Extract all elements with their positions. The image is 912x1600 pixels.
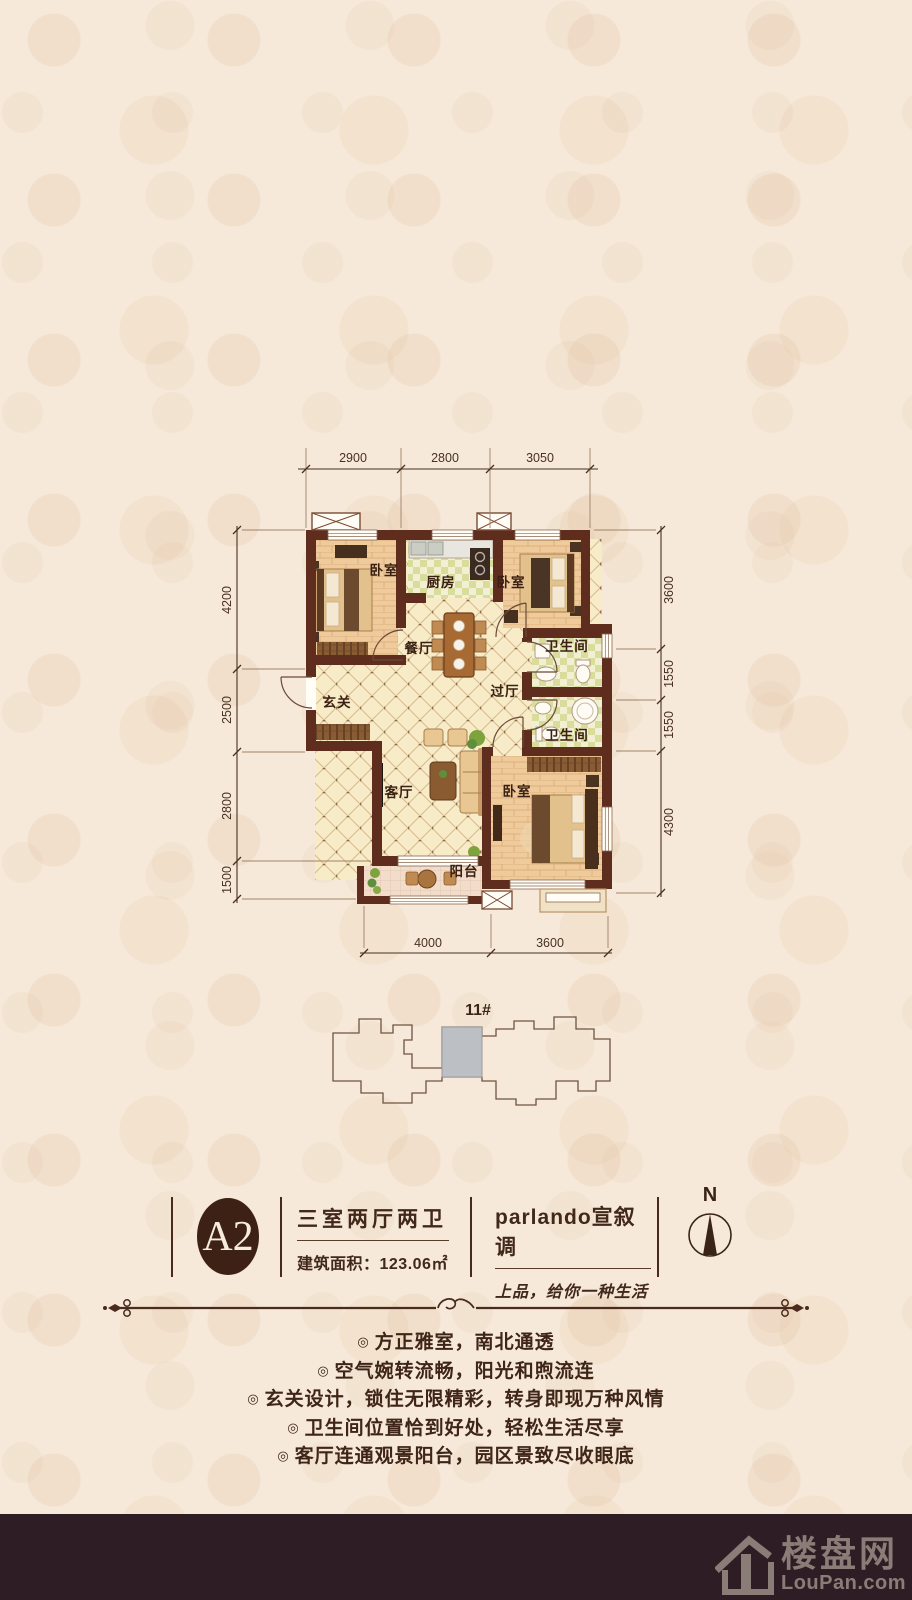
room-label-kitchen: 厨房 [427, 574, 456, 590]
watermark-text: 楼盘网 LouPan.com [781, 1536, 906, 1594]
dim-bottom-0: 4000 [414, 936, 442, 950]
watermark-site-name: 楼盘网 [781, 1536, 906, 1572]
dim-left-3: 1500 [220, 866, 234, 894]
bullet-icon: ◎ [287, 1420, 299, 1435]
balcony-window [390, 896, 468, 904]
room-label-bedroom-bottom: 卧室 [503, 783, 532, 799]
bay-window-box-mid [477, 513, 511, 530]
feature-item: ◎客厅连通观景阳台，园区景致尽收眼底 [0, 1442, 912, 1471]
brand-block: parlando宣叙调 上品，给你一种生活 [495, 1201, 657, 1302]
window-bedroom-right [602, 807, 612, 851]
dim-right-2: 1550 [662, 711, 676, 739]
info-divider-4 [657, 1197, 659, 1277]
unit-code: A2 [202, 1213, 253, 1261]
floorplan-poster: 2900 2800 3050 4200 2500 2800 1500 3600 … [0, 0, 912, 1600]
dim-left-2: 2800 [220, 792, 234, 820]
dim-right-3: 4300 [662, 808, 676, 836]
bullet-icon: ◎ [317, 1363, 329, 1378]
bay-window-bottom [540, 889, 606, 912]
feature-item: ◎方正雅室，南北通透 [0, 1328, 912, 1357]
dim-right-0: 3600 [662, 576, 676, 604]
info-divider-2 [280, 1197, 282, 1277]
layout-title: 三室两厅两卫 [297, 1203, 472, 1233]
room-label-balcony: 阳台 [450, 863, 479, 879]
room-label-bath-upper: 卫生间 [545, 638, 589, 654]
dim-top-0: 2900 [339, 451, 367, 465]
footer-bar: 楼盘网 LouPan.com [0, 1514, 912, 1600]
room-label-dining: 餐厅 [404, 640, 434, 656]
room-label-hallway: 过厅 [491, 683, 520, 699]
room-label-bedroom-top-right: 卧室 [497, 574, 526, 590]
feature-list: ◎方正雅室，南北通透 ◎空气婉转流畅，阳光和煦流连 ◎玄关设计，锁住无限精彩，转… [0, 1328, 912, 1471]
bay-window-box-left [312, 513, 360, 530]
dim-bottom-1: 3600 [536, 936, 564, 950]
dim-left-0: 4200 [220, 586, 234, 614]
watermark: 楼盘网 LouPan.com [715, 1534, 906, 1596]
bullet-icon: ◎ [357, 1334, 369, 1349]
feature-item: ◎玄关设计，锁住无限精彩，转身即现万种风情 [0, 1385, 912, 1414]
feature-text: 卫生间位置恰到好处，轻松生活尽享 [305, 1418, 625, 1439]
shoe-cabinet [314, 724, 370, 740]
feature-text: 客厅连通观景阳台，园区景致尽收眼底 [295, 1446, 635, 1467]
dim-top-1: 2800 [431, 451, 459, 465]
dim-right-1: 1550 [662, 660, 676, 688]
dim-top-2: 3050 [526, 451, 554, 465]
watermark-site-domain: LouPan.com [781, 1572, 906, 1594]
ornamental-divider [100, 1294, 812, 1322]
feature-text: 空气婉转流畅，阳光和煦流连 [335, 1361, 595, 1382]
feature-text: 玄关设计，锁住无限精彩，转身即现万种风情 [265, 1389, 665, 1410]
layout-block: 三室两厅两卫 建筑面积：123.06㎡ [297, 1203, 472, 1274]
room-label-foyer: 玄关 [323, 694, 352, 710]
area-text: 建筑面积：123.06㎡ [297, 1250, 472, 1274]
room-label-bath-lower: 卫生间 [545, 727, 589, 743]
bullet-icon: ◎ [247, 1391, 259, 1406]
room-label-bedroom-top-left: 卧室 [370, 562, 399, 578]
feature-text: 方正雅室，南北通透 [375, 1332, 555, 1353]
building-label: 11# [465, 1002, 491, 1019]
feature-item: ◎卫生间位置恰到好处，轻松生活尽享 [0, 1414, 912, 1443]
house-logo-icon [715, 1534, 777, 1596]
dim-left-1: 2500 [220, 696, 234, 724]
layout-underline [297, 1240, 449, 1241]
window-top-3 [515, 530, 560, 540]
info-divider-1 [171, 1197, 173, 1277]
key-plan: 11# [333, 1002, 610, 1105]
brand-underline [495, 1268, 651, 1269]
bullet-icon: ◎ [277, 1448, 289, 1463]
unit-highlight [442, 1027, 482, 1077]
compass-north-label: N [684, 1184, 736, 1207]
window-bath-step [602, 634, 612, 658]
compass-icon [684, 1209, 736, 1261]
window-top-1 [328, 530, 377, 540]
room-label-living: 客厅 [384, 784, 414, 800]
info-divider-3 [470, 1197, 472, 1277]
window-top-2 [432, 530, 473, 540]
brand-title: parlando宣叙调 [495, 1201, 657, 1261]
window-bedroom-south [510, 880, 585, 889]
unit-badge: A2 [197, 1198, 259, 1275]
feature-item: ◎空气婉转流畅，阳光和煦流连 [0, 1357, 912, 1386]
compass: N [684, 1184, 736, 1266]
dining-table [432, 613, 486, 677]
ac-platform [482, 891, 512, 909]
